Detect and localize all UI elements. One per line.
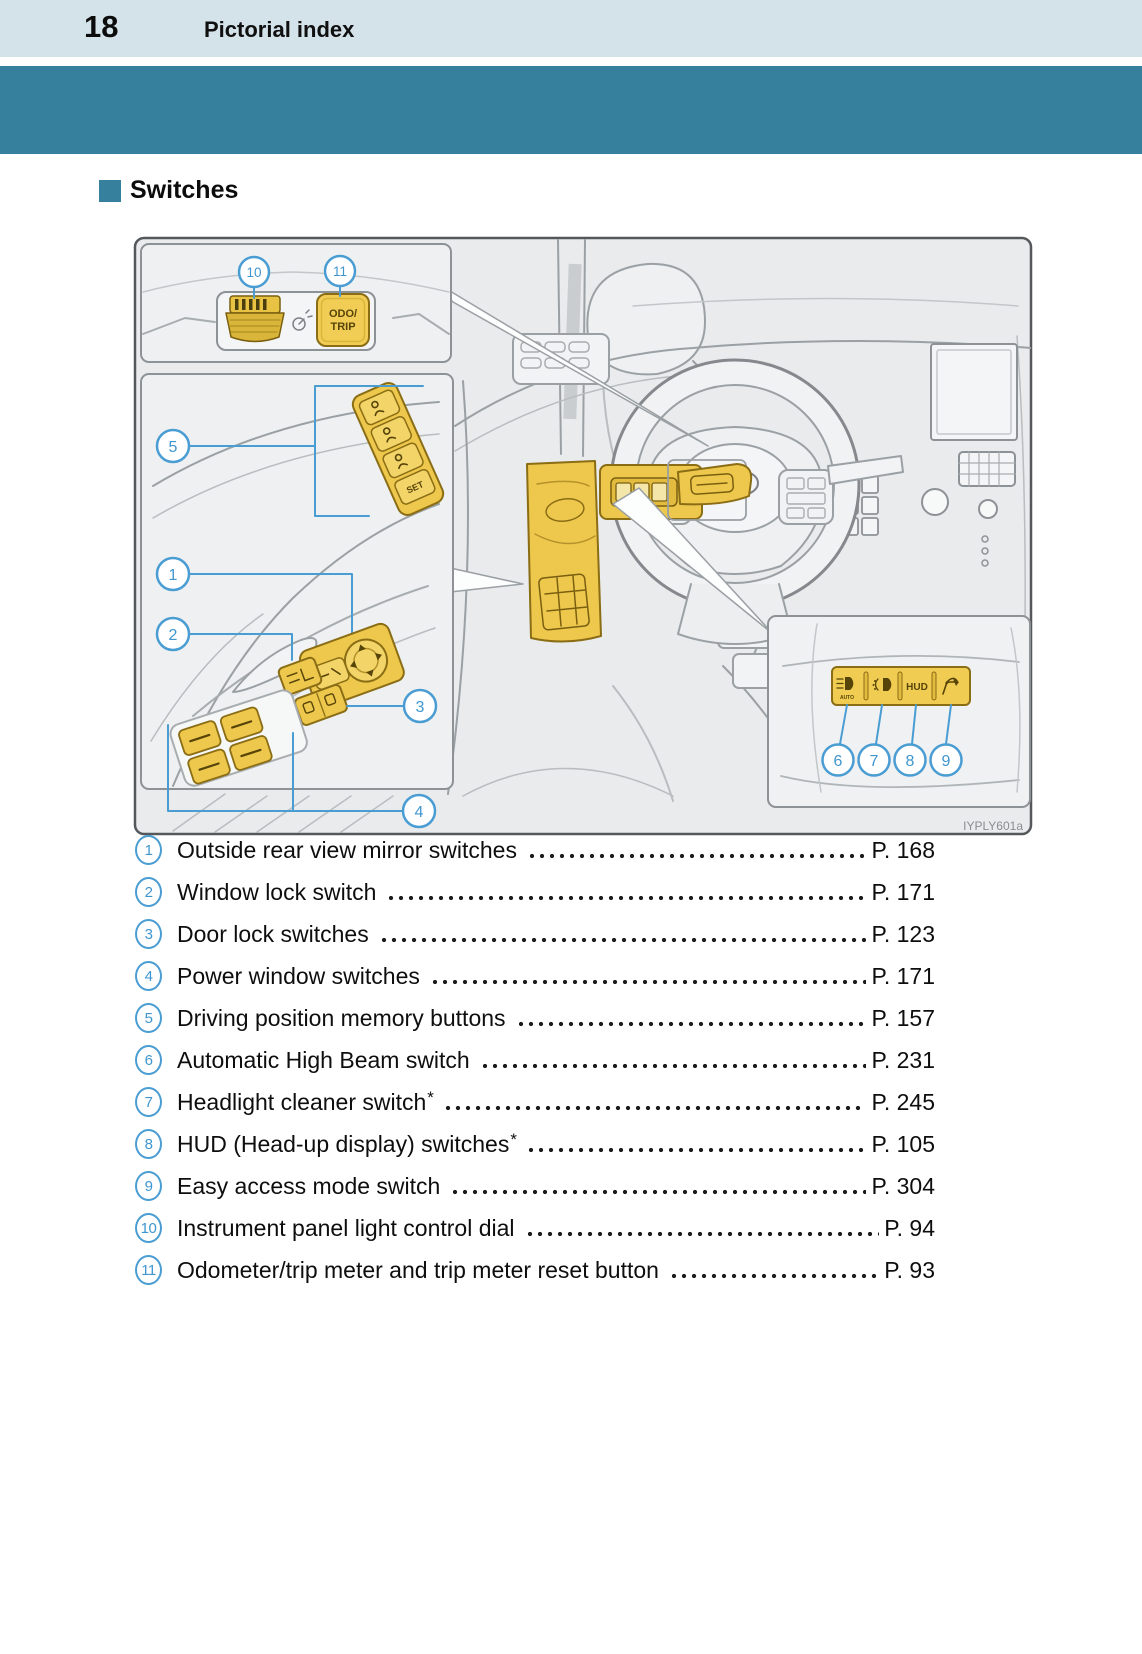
index-row: 6 Automatic High Beam switch P. 231 xyxy=(135,1039,935,1081)
page-reference: P. 105 xyxy=(871,1131,935,1158)
callout-number-badge: 10 xyxy=(135,1213,162,1243)
callout-number-badge: 9 xyxy=(135,1171,162,1201)
svg-text:2: 2 xyxy=(169,627,178,644)
callout-number-badge: 2 xyxy=(135,877,162,907)
dotted-leader xyxy=(384,871,866,913)
door-panel-inset: SET xyxy=(141,374,453,827)
index-row: 4 Power window switches P. 171 xyxy=(135,955,935,997)
index-row: 5 Driving position memory buttons P. 157 xyxy=(135,997,935,1039)
dotted-leader xyxy=(377,913,867,955)
door-edge-switch-panel xyxy=(527,461,601,642)
index-row: 8 HUD (Head-up display) switches* P. 105 xyxy=(135,1123,935,1165)
page-reference: P. 304 xyxy=(871,1173,935,1200)
asterisk-note: * xyxy=(510,1130,517,1149)
figure-callout-5: 5 xyxy=(157,430,189,462)
index-row: 1 Outside rear view mirror switches P. 1… xyxy=(135,829,935,871)
dash-knob-small xyxy=(979,500,997,518)
index-item-label: Instrument panel light control dial xyxy=(177,1214,516,1242)
svg-text:6: 6 xyxy=(834,753,843,770)
dotted-leader xyxy=(523,1207,880,1249)
page-number: 18 xyxy=(84,9,118,45)
index-item-label: Window lock switch xyxy=(177,878,377,906)
callout-number-badge: 7 xyxy=(135,1087,162,1117)
display-screen xyxy=(931,344,1017,440)
index-row: 10 Instrument panel light control dial P… xyxy=(135,1207,935,1249)
index-item-label: Automatic High Beam switch xyxy=(177,1046,471,1074)
figure-callout-7: 7 xyxy=(859,745,890,776)
figure-callout-4: 4 xyxy=(403,795,435,827)
page-header: 18 Pictorial index xyxy=(0,0,1142,57)
side-air-vent xyxy=(959,452,1015,486)
index-item-label: HUD (Head-up display) switches* xyxy=(177,1130,517,1158)
svg-text:3: 3 xyxy=(416,699,425,716)
index-item-label: Driving position memory buttons xyxy=(177,1004,507,1032)
svg-text:1: 1 xyxy=(169,567,178,584)
hud-button-label: HUD xyxy=(906,682,928,693)
figure-code: IYPLY601a xyxy=(963,819,1023,833)
callout-number-badge: 6 xyxy=(135,1045,162,1075)
dotted-leader xyxy=(514,997,867,1039)
header-section-title: Pictorial index xyxy=(204,17,354,43)
switch-panel-inset: AUTO HUD xyxy=(768,616,1030,807)
dash-knob xyxy=(922,489,948,515)
dotted-leader xyxy=(441,1081,867,1123)
svg-text:AUTO: AUTO xyxy=(840,695,854,701)
page-reference: P. 171 xyxy=(871,963,935,990)
page-reference: P. 231 xyxy=(871,1047,935,1074)
figure-callout-8: 8 xyxy=(895,745,926,776)
svg-text:7: 7 xyxy=(870,753,879,770)
index-row: 7 Headlight cleaner switch* P. 245 xyxy=(135,1081,935,1123)
index-item-label: Headlight cleaner switch* xyxy=(177,1088,434,1116)
index-row: 11 Odometer/trip meter and trip meter re… xyxy=(135,1249,935,1291)
svg-text:9: 9 xyxy=(942,753,951,770)
callout-number-badge: 1 xyxy=(135,835,162,865)
page-reference: P. 123 xyxy=(871,921,935,948)
odo-label-line1: ODO/ xyxy=(329,308,357,320)
index-item-label: Outside rear view mirror switches xyxy=(177,836,518,864)
figure-callout-9: 9 xyxy=(931,745,962,776)
svg-text:8: 8 xyxy=(906,753,915,770)
dotted-leader xyxy=(448,1165,866,1207)
section-title: Switches xyxy=(130,176,238,205)
page-reference: P. 168 xyxy=(871,837,935,864)
figure-callout-1: 1 xyxy=(157,558,189,590)
index-item-label: Odometer/trip meter and trip meter reset… xyxy=(177,1256,660,1284)
dotted-leader xyxy=(428,955,867,997)
svg-text:11: 11 xyxy=(333,264,347,279)
callout-number-badge: 3 xyxy=(135,919,162,949)
switch-index-list: 1 Outside rear view mirror switches P. 1… xyxy=(135,829,935,1291)
figure-callout-3: 3 xyxy=(404,690,436,722)
chapter-color-band xyxy=(0,66,1142,154)
switches-figure: ODO/ TRIP 10 11 xyxy=(133,236,1033,836)
page-reference: P. 94 xyxy=(884,1215,935,1242)
figure-callout-2: 2 xyxy=(157,618,189,650)
odo-label-line2: TRIP xyxy=(330,321,355,333)
figure-callout-6: 6 xyxy=(823,745,854,776)
svg-text:5: 5 xyxy=(169,439,178,456)
index-row: 9 Easy access mode switch P. 304 xyxy=(135,1165,935,1207)
asterisk-note: * xyxy=(427,1088,434,1107)
index-item-label: Power window switches xyxy=(177,962,421,990)
dotted-leader xyxy=(478,1039,867,1081)
index-row: 2 Window lock switch P. 171 xyxy=(135,871,935,913)
panel-light-control-dial xyxy=(226,296,284,342)
top-inset: ODO/ TRIP 10 11 xyxy=(141,244,451,362)
page-reference: P. 157 xyxy=(871,1005,935,1032)
index-item-label: Easy access mode switch xyxy=(177,1172,441,1200)
callout-number-badge: 8 xyxy=(135,1129,162,1159)
index-row: 3 Door lock switches P. 123 xyxy=(135,913,935,955)
page-reference: P. 171 xyxy=(871,879,935,906)
driver-switch-panel: AUTO HUD xyxy=(832,667,970,705)
section-heading: Switches xyxy=(99,176,238,205)
odo-trip-button: ODO/ TRIP xyxy=(317,294,369,346)
svg-text:10: 10 xyxy=(246,265,261,280)
svg-text:4: 4 xyxy=(415,804,424,821)
dotted-leader xyxy=(667,1249,879,1291)
dotted-leader xyxy=(525,829,867,871)
callout-number-badge: 11 xyxy=(135,1255,162,1285)
index-item-label: Door lock switches xyxy=(177,920,370,948)
page-reference: P. 245 xyxy=(871,1089,935,1116)
callout-number-badge: 4 xyxy=(135,961,162,991)
dotted-leader xyxy=(524,1123,867,1165)
cockpit-illustration: ODO/ TRIP 10 11 xyxy=(133,236,1033,836)
section-bullet-icon xyxy=(99,180,121,202)
callout-number-badge: 5 xyxy=(135,1003,162,1033)
manual-page: 18 Pictorial index Switches xyxy=(0,0,1142,1654)
page-reference: P. 93 xyxy=(884,1257,935,1284)
